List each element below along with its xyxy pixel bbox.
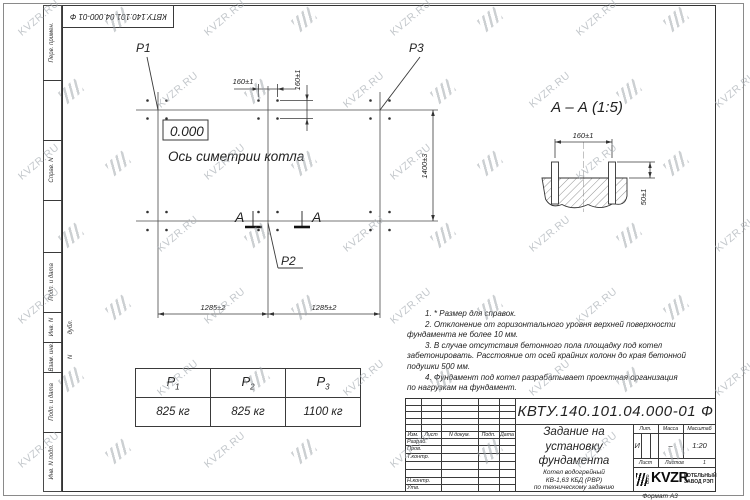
p2-sub: 2 — [250, 383, 254, 392]
sheets-value: 1 — [703, 460, 706, 466]
company-logo-text: KVZR — [651, 470, 688, 486]
section-letter-right: А — [311, 209, 321, 225]
scale-value: 1:20 — [683, 441, 716, 450]
dim-1400-value: 1400±3 — [420, 153, 429, 179]
p1-base: P — [166, 374, 175, 389]
tb-line — [641, 433, 642, 458]
lit-value: И — [633, 441, 641, 450]
dim-protrusion-value: 50±1 — [639, 189, 648, 206]
dim-column-spans — [158, 312, 380, 315]
note-line: забетонировать. Расстояние от осей крайн… — [407, 351, 713, 362]
note-line: 3. В случае отсутствия бетонного пола пл… — [407, 341, 713, 352]
load-table-header-row: P1 P2 P3 — [136, 369, 361, 398]
p1-sub: 1 — [175, 383, 179, 392]
dim-span-right-value: 1285±2 — [312, 303, 338, 312]
note-line: 1. * Размер для справок. — [407, 309, 713, 320]
title-line-1: Задание на — [517, 425, 631, 440]
section-cut-marks — [245, 211, 310, 227]
p3-sub: 3 — [325, 383, 329, 392]
load-table-header-p2: P2 — [211, 369, 286, 398]
title-line-2: установку — [517, 440, 631, 455]
company-ooo: ООО — [646, 474, 650, 484]
product-description: Котел водогрейный КВ-1,63 КБД (РВР) по т… — [517, 469, 631, 492]
load-table-value-row: 825 кг 825 кг 1100 кг — [136, 398, 361, 427]
load-table-header-p1: P1 — [136, 369, 211, 398]
load-label-p3: P3 — [409, 41, 424, 55]
p3-base: P — [316, 374, 325, 389]
tb-line — [633, 467, 716, 468]
row-razrab: Разраб. — [407, 439, 427, 445]
tb-line — [650, 433, 651, 458]
anchor-bolt-points — [146, 99, 391, 231]
sheet-label: Лист — [633, 460, 658, 466]
load-label-p1: P1 — [136, 41, 151, 55]
section-view-title: А – А (1:5) — [550, 99, 623, 116]
tb-line — [405, 469, 515, 470]
col-data: Дата — [499, 432, 515, 438]
load-value-p3: 1100 кг — [286, 398, 361, 427]
col-podp: Подп. — [478, 432, 499, 438]
col-izm: Изм. — [405, 432, 421, 438]
anchor-bolt-left — [552, 162, 559, 204]
col-docnum: N докум. — [441, 432, 478, 438]
dim-section-bolts-value: 160±1 — [573, 131, 594, 140]
section-letter-left: А — [234, 209, 244, 225]
row-tkontr: Т.контр. — [407, 454, 429, 460]
format-label: Формат А3 — [615, 493, 705, 500]
drawing-sheet: Перв. примен. Справ. N Подп. и дата Инв.… — [0, 0, 750, 500]
tb-line — [633, 433, 716, 434]
company-name: КОТЕЛЬНЫЙ ЗАВОД РЭП — [684, 473, 716, 486]
note-line: 4. Фундамент под котел разрабатывает про… — [407, 373, 713, 384]
row-prov: Пров. — [407, 446, 422, 452]
note-line: по нагрузкам на фундамент. — [407, 383, 713, 394]
load-label-p2: P2 — [281, 254, 296, 268]
tb-line — [405, 405, 515, 406]
dim-bolt-spacing-v — [280, 85, 313, 131]
doc-number: КВТУ.140.101.04.000-01 Ф — [515, 400, 716, 424]
tb-line — [633, 458, 716, 459]
tb-line — [405, 461, 515, 462]
load-table-header-p3: P3 — [286, 369, 361, 398]
dim-bolt-protrusion — [617, 162, 655, 178]
tb-line — [405, 484, 515, 485]
note-line: подушки 500 мм. — [407, 362, 713, 373]
dim-bolt-v-value: 160±1 — [293, 70, 302, 91]
mass-header: Масса — [658, 426, 683, 432]
tb-line — [405, 411, 515, 412]
tb-line — [405, 418, 515, 419]
company-name-line-2: ЗАВОД РЭП — [684, 479, 716, 486]
load-value-p1: 825 кг — [136, 398, 211, 427]
p2-base: P — [241, 374, 250, 389]
col-list: Лист — [421, 432, 441, 438]
load-table: P1 P2 P3 825 кг 825 кг 1100 кг — [135, 368, 361, 427]
dim-bolt-h-value: 160±1 — [233, 77, 254, 86]
note-line: 2. Отклонение от горизонтального уровня … — [407, 320, 713, 331]
dim-foundation-width — [431, 110, 435, 221]
product-line-1: Котел водогрейный — [517, 469, 631, 477]
axis-of-symmetry-label: Ось симетрии котла — [168, 149, 305, 164]
row-utv: Утв. — [407, 485, 420, 491]
sheets-label: Листов — [665, 460, 684, 466]
note-line: фундамента не более 10 мм. — [407, 330, 713, 341]
technical-notes: 1. * Размер для справок. 2. Отклонение о… — [407, 309, 713, 394]
elevation-value: 0.000 — [170, 124, 204, 139]
mass-value: – — [658, 441, 683, 450]
tb-line — [405, 424, 515, 425]
product-line-3: по техническому заданию — [517, 484, 631, 492]
title-line-3: фундамента — [517, 454, 631, 469]
row-nkontr: Н.контр. — [407, 478, 430, 484]
drawing-title: Задание на установку фундамента — [517, 425, 631, 469]
scale-header: Масштаб — [683, 426, 716, 432]
load-value-p2: 825 кг — [211, 398, 286, 427]
dim-span-left-value: 1285±2 — [201, 303, 227, 312]
anchor-bolt-right — [609, 162, 616, 204]
lit-header: Лит. — [633, 426, 658, 432]
